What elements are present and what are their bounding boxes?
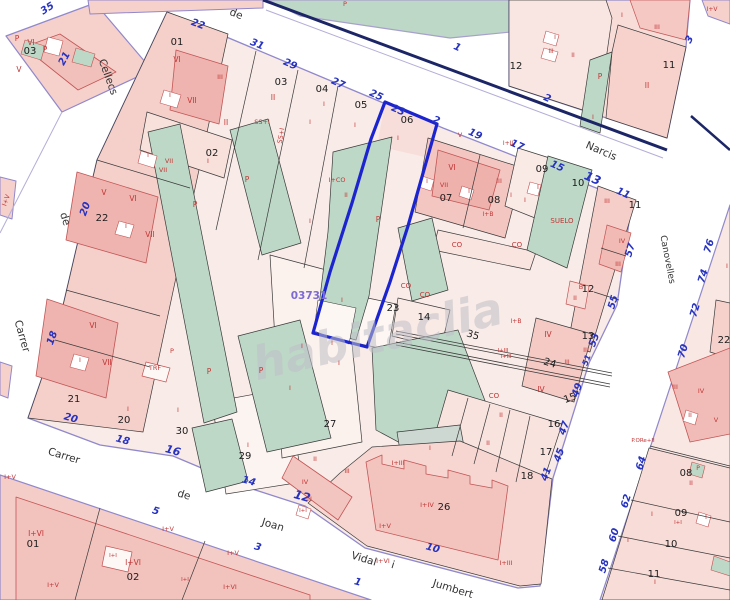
street-number-label: 1	[452, 41, 463, 54]
block-sw-inner	[16, 497, 310, 600]
street-name-label: Canovelles	[657, 235, 676, 285]
parcel-number-label: 01	[171, 37, 184, 48]
storey-code-label: I+V	[227, 549, 239, 557]
storey-code-label: I+VI	[125, 558, 141, 567]
storey-code-label: I	[309, 119, 311, 126]
parcel-number-label: 20	[118, 415, 131, 426]
storey-code-label: P	[259, 366, 264, 375]
storey-code-label: II	[688, 411, 692, 419]
block-east-band	[602, 448, 730, 600]
storey-code-label: I+III	[500, 354, 511, 360]
parcel-number-label: 03	[275, 77, 288, 88]
block-code: 03731	[291, 290, 328, 302]
parcel-number-label: 07	[440, 193, 453, 204]
parcel-number-label: 12	[510, 61, 523, 72]
storey-code-label: III	[217, 73, 223, 81]
storey-code-label: VII	[187, 96, 197, 105]
storey-code-label: CO	[512, 241, 523, 249]
storey-code-label: I+III	[391, 459, 404, 467]
parcel-number-label: 03	[24, 46, 37, 57]
storey-code-label: III	[564, 359, 570, 366]
parcel-number-label: 16	[548, 419, 561, 430]
storey-code-label: I+B	[483, 211, 494, 218]
storey-code-label: SS+I	[254, 118, 270, 126]
storey-code-label: IV	[698, 387, 705, 395]
parcel-number-label: 22	[96, 213, 109, 224]
parcel-number-label: 30	[176, 426, 189, 437]
storey-code-label: P	[343, 0, 347, 8]
parcel-number-label: 18	[521, 471, 534, 482]
street-name-label: Joan	[259, 516, 285, 534]
storey-code-label: I	[147, 152, 149, 159]
storey-code-label: III	[672, 383, 678, 391]
street-number-label: 35	[39, 0, 57, 17]
street-name-label: Vidal	[350, 550, 378, 569]
storey-code-label: I+VI	[223, 583, 237, 591]
parcel-number-label: 10	[572, 178, 585, 189]
storey-code-label: I	[354, 121, 356, 129]
street-name-label: Carrer	[12, 319, 33, 354]
storey-code-label: I+CO	[328, 176, 345, 184]
storey-code-label: I	[289, 384, 291, 392]
storey-code-label: II	[571, 52, 575, 59]
street-number-label: 3	[253, 541, 263, 554]
storey-code-label: VII	[165, 157, 173, 165]
parcel-number-label: 01	[27, 539, 40, 550]
storey-code-label: P	[598, 72, 603, 81]
storey-code-label: I	[726, 262, 728, 270]
storey-code-label: I	[621, 11, 623, 19]
storey-code-label: I	[331, 340, 333, 347]
parcel-number-label: 17	[540, 447, 553, 458]
storey-code-label: II	[344, 192, 348, 199]
storey-code-label: VI	[173, 55, 180, 64]
storey-code-label: II	[271, 93, 275, 102]
storey-code-label: I+I	[674, 520, 682, 526]
storey-code-label: II	[645, 81, 649, 90]
storey-code-label: I	[510, 192, 512, 199]
storey-code-label: I+V	[47, 581, 59, 589]
storey-code-label: V	[714, 416, 719, 424]
storey-code-label: I+V	[379, 522, 391, 530]
storey-code-label: III	[615, 260, 621, 268]
parcel-number-label: 06	[401, 115, 414, 126]
street-number-label: 1	[353, 576, 363, 588]
storey-code-label: I	[247, 441, 249, 449]
storey-code-label: V	[458, 131, 463, 139]
storey-code-label: CO	[401, 282, 412, 290]
storey-code-label: CO	[489, 392, 500, 400]
storey-code-label: I+III	[499, 559, 512, 567]
storey-code-label: IV	[302, 478, 309, 486]
parcel-number-label: 04	[316, 84, 329, 95]
parcel-number-label: 29	[239, 451, 252, 462]
storey-code-label: I+VI	[376, 557, 390, 565]
storey-code-label: I	[323, 100, 325, 108]
storey-code-label: II	[313, 455, 317, 463]
storey-code-label: I+IV	[420, 501, 434, 509]
street-name-label: Jumbert	[430, 577, 474, 600]
street-number-label: 5	[151, 505, 161, 518]
parcel-number-label: 22	[718, 335, 730, 346]
parcel-number-label: 09	[536, 164, 549, 175]
storey-code-label: I	[79, 356, 81, 364]
storey-code-label: I+B	[511, 318, 522, 325]
storey-code-label: I	[654, 578, 656, 586]
storey-code-label: I+V	[707, 6, 719, 13]
parcel-number-label: 11	[629, 200, 642, 211]
parcel-number-label: 27	[324, 419, 337, 430]
storey-code-label: VII	[145, 230, 155, 239]
storey-code-label: I	[426, 178, 428, 185]
parcel-number-label: 08	[488, 195, 501, 206]
storey-code-label: P.ORe+II	[631, 438, 655, 444]
storey-code-label: P	[15, 34, 20, 43]
storey-code-label: II	[689, 479, 693, 487]
street-edge-west	[0, 112, 62, 233]
storey-code-label: I	[169, 91, 171, 99]
storey-code-label: I+I	[181, 577, 189, 583]
storey-code-label: III	[583, 346, 589, 354]
storey-code-label: II	[499, 411, 503, 419]
storey-code-label: SUELO	[550, 217, 574, 225]
storey-code-label: P	[245, 175, 250, 184]
storey-code-label: VI	[27, 38, 34, 47]
storey-code-label: I	[301, 342, 303, 350]
storey-code-label: I	[468, 188, 470, 195]
storey-code-label: I+I	[109, 553, 117, 559]
storey-code-label: P	[193, 200, 198, 209]
storey-code-label: I+II	[503, 140, 514, 147]
parcel-number-label: 11	[663, 60, 676, 71]
street-name-label: i	[390, 559, 396, 571]
storey-code-label: P	[696, 465, 700, 472]
parcel-number-label: 10	[665, 539, 678, 550]
storey-code-label: P	[43, 45, 48, 54]
storey-code-label: VII	[440, 181, 448, 189]
storey-code-label: I	[705, 514, 707, 521]
storey-code-label: I	[125, 222, 127, 230]
storey-code-label: I	[627, 536, 629, 544]
storey-code-label: V	[101, 188, 107, 197]
storey-code-label: VI	[129, 194, 136, 203]
storey-code-label: III	[344, 468, 350, 475]
parcel-number-label: 09	[675, 508, 688, 519]
storey-code-label: VII	[102, 358, 112, 367]
storey-code-label: II	[486, 439, 490, 447]
storey-code-label: I	[651, 510, 653, 518]
storey-code-label: P	[376, 215, 381, 224]
storey-code-label: I+I	[299, 508, 307, 514]
map-viewport: habitaclia 03731 CellecsdeCarrerdeNarcis…	[0, 0, 730, 600]
storey-code-label: VI	[89, 321, 96, 330]
parcel-number-label: 13	[582, 331, 595, 342]
storey-code-label: I	[429, 444, 431, 452]
storey-code-label: I	[397, 134, 399, 142]
storey-code-label: VII	[159, 166, 167, 174]
parcel-number-label: 12	[582, 284, 595, 295]
storey-code-label: II	[573, 294, 577, 302]
storey-code-label: P	[207, 367, 212, 376]
parcel-number-label: 23	[387, 303, 400, 314]
storey-code-label: CO	[420, 291, 431, 299]
storey-code-label: I	[207, 157, 209, 165]
parcel-number-label: 08	[680, 468, 693, 479]
storey-code-label: TRF	[148, 364, 161, 372]
storey-code-label: I	[341, 296, 343, 304]
storey-code-label: III	[306, 495, 312, 503]
storey-code-label: I	[338, 359, 340, 367]
parcel-number-label: 05	[355, 100, 368, 111]
storey-code-label: II	[224, 118, 228, 127]
storey-code-label: III	[548, 48, 554, 55]
storey-code-label: III	[654, 23, 660, 31]
storey-code-label: B	[579, 283, 583, 291]
storey-code-label: I	[537, 183, 539, 191]
storey-code-label: V	[16, 65, 22, 74]
municipal-boundary-2	[691, 116, 730, 150]
storey-code-label: III	[604, 197, 610, 205]
parcel-number-label: 02	[127, 572, 140, 583]
parcel-number-label: 21	[68, 394, 81, 405]
storey-code-label: IV	[619, 237, 626, 245]
street-name-label: de	[176, 487, 192, 502]
storey-code-label: III	[496, 177, 502, 185]
cadastral-map[interactable]: habitaclia 03731 CellecsdeCarrerdeNarcis…	[0, 0, 730, 600]
parcel-number-label: 14	[418, 312, 431, 323]
west-sliver-2	[0, 362, 12, 398]
street-name-label: Carrer	[46, 446, 81, 467]
storey-code-label: IV	[537, 385, 545, 394]
storey-code-label: I+VI	[28, 529, 44, 538]
storey-code-label: I	[127, 405, 129, 413]
storey-code-label: CO	[452, 241, 463, 249]
storey-code-label: I+V	[162, 525, 174, 533]
storey-code-label: I	[524, 196, 526, 204]
parcel-number-label: 26	[438, 502, 451, 513]
street-name-label: Narcis	[584, 139, 619, 163]
storey-code-label: VI	[448, 163, 455, 172]
storey-code-label: I+V	[4, 473, 16, 481]
storey-code-label: P	[170, 347, 174, 355]
storey-code-label: I	[554, 34, 556, 41]
storey-code-label: IV	[544, 330, 552, 339]
storey-code-label: I	[177, 406, 179, 414]
storey-code-label: I	[309, 217, 311, 225]
storey-code-label: I	[592, 113, 594, 121]
